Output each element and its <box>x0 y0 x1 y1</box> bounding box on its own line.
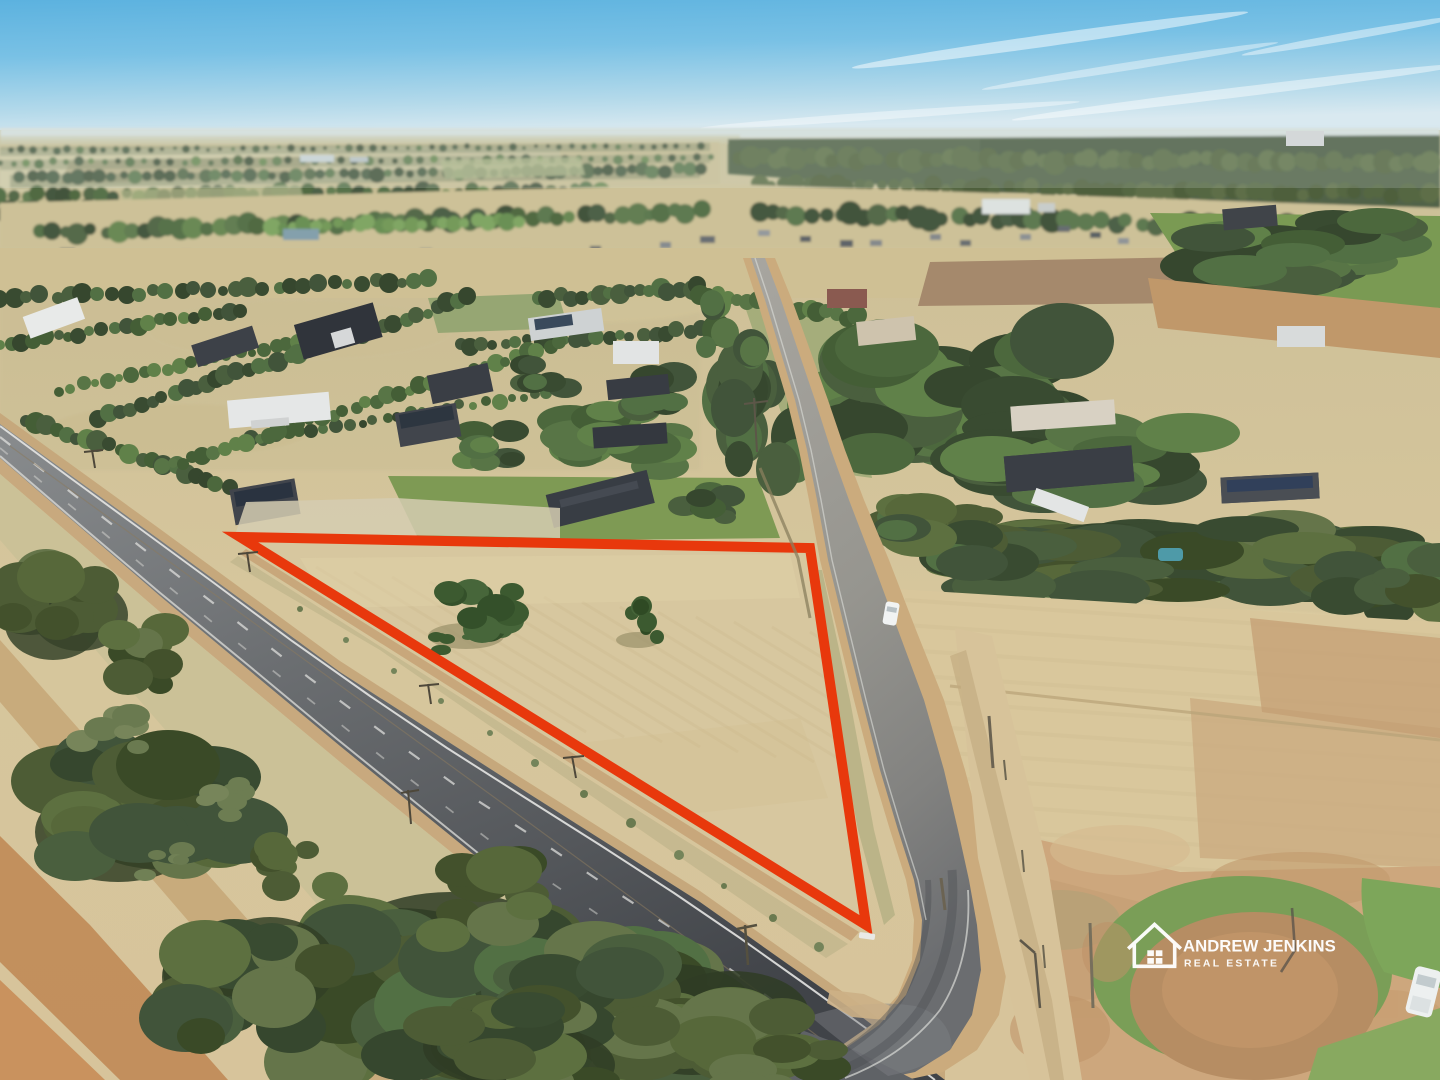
svg-text:REAL ESTATE: REAL ESTATE <box>1184 959 1279 970</box>
svg-text:ANDREW JENKINS: ANDREW JENKINS <box>1183 937 1336 956</box>
